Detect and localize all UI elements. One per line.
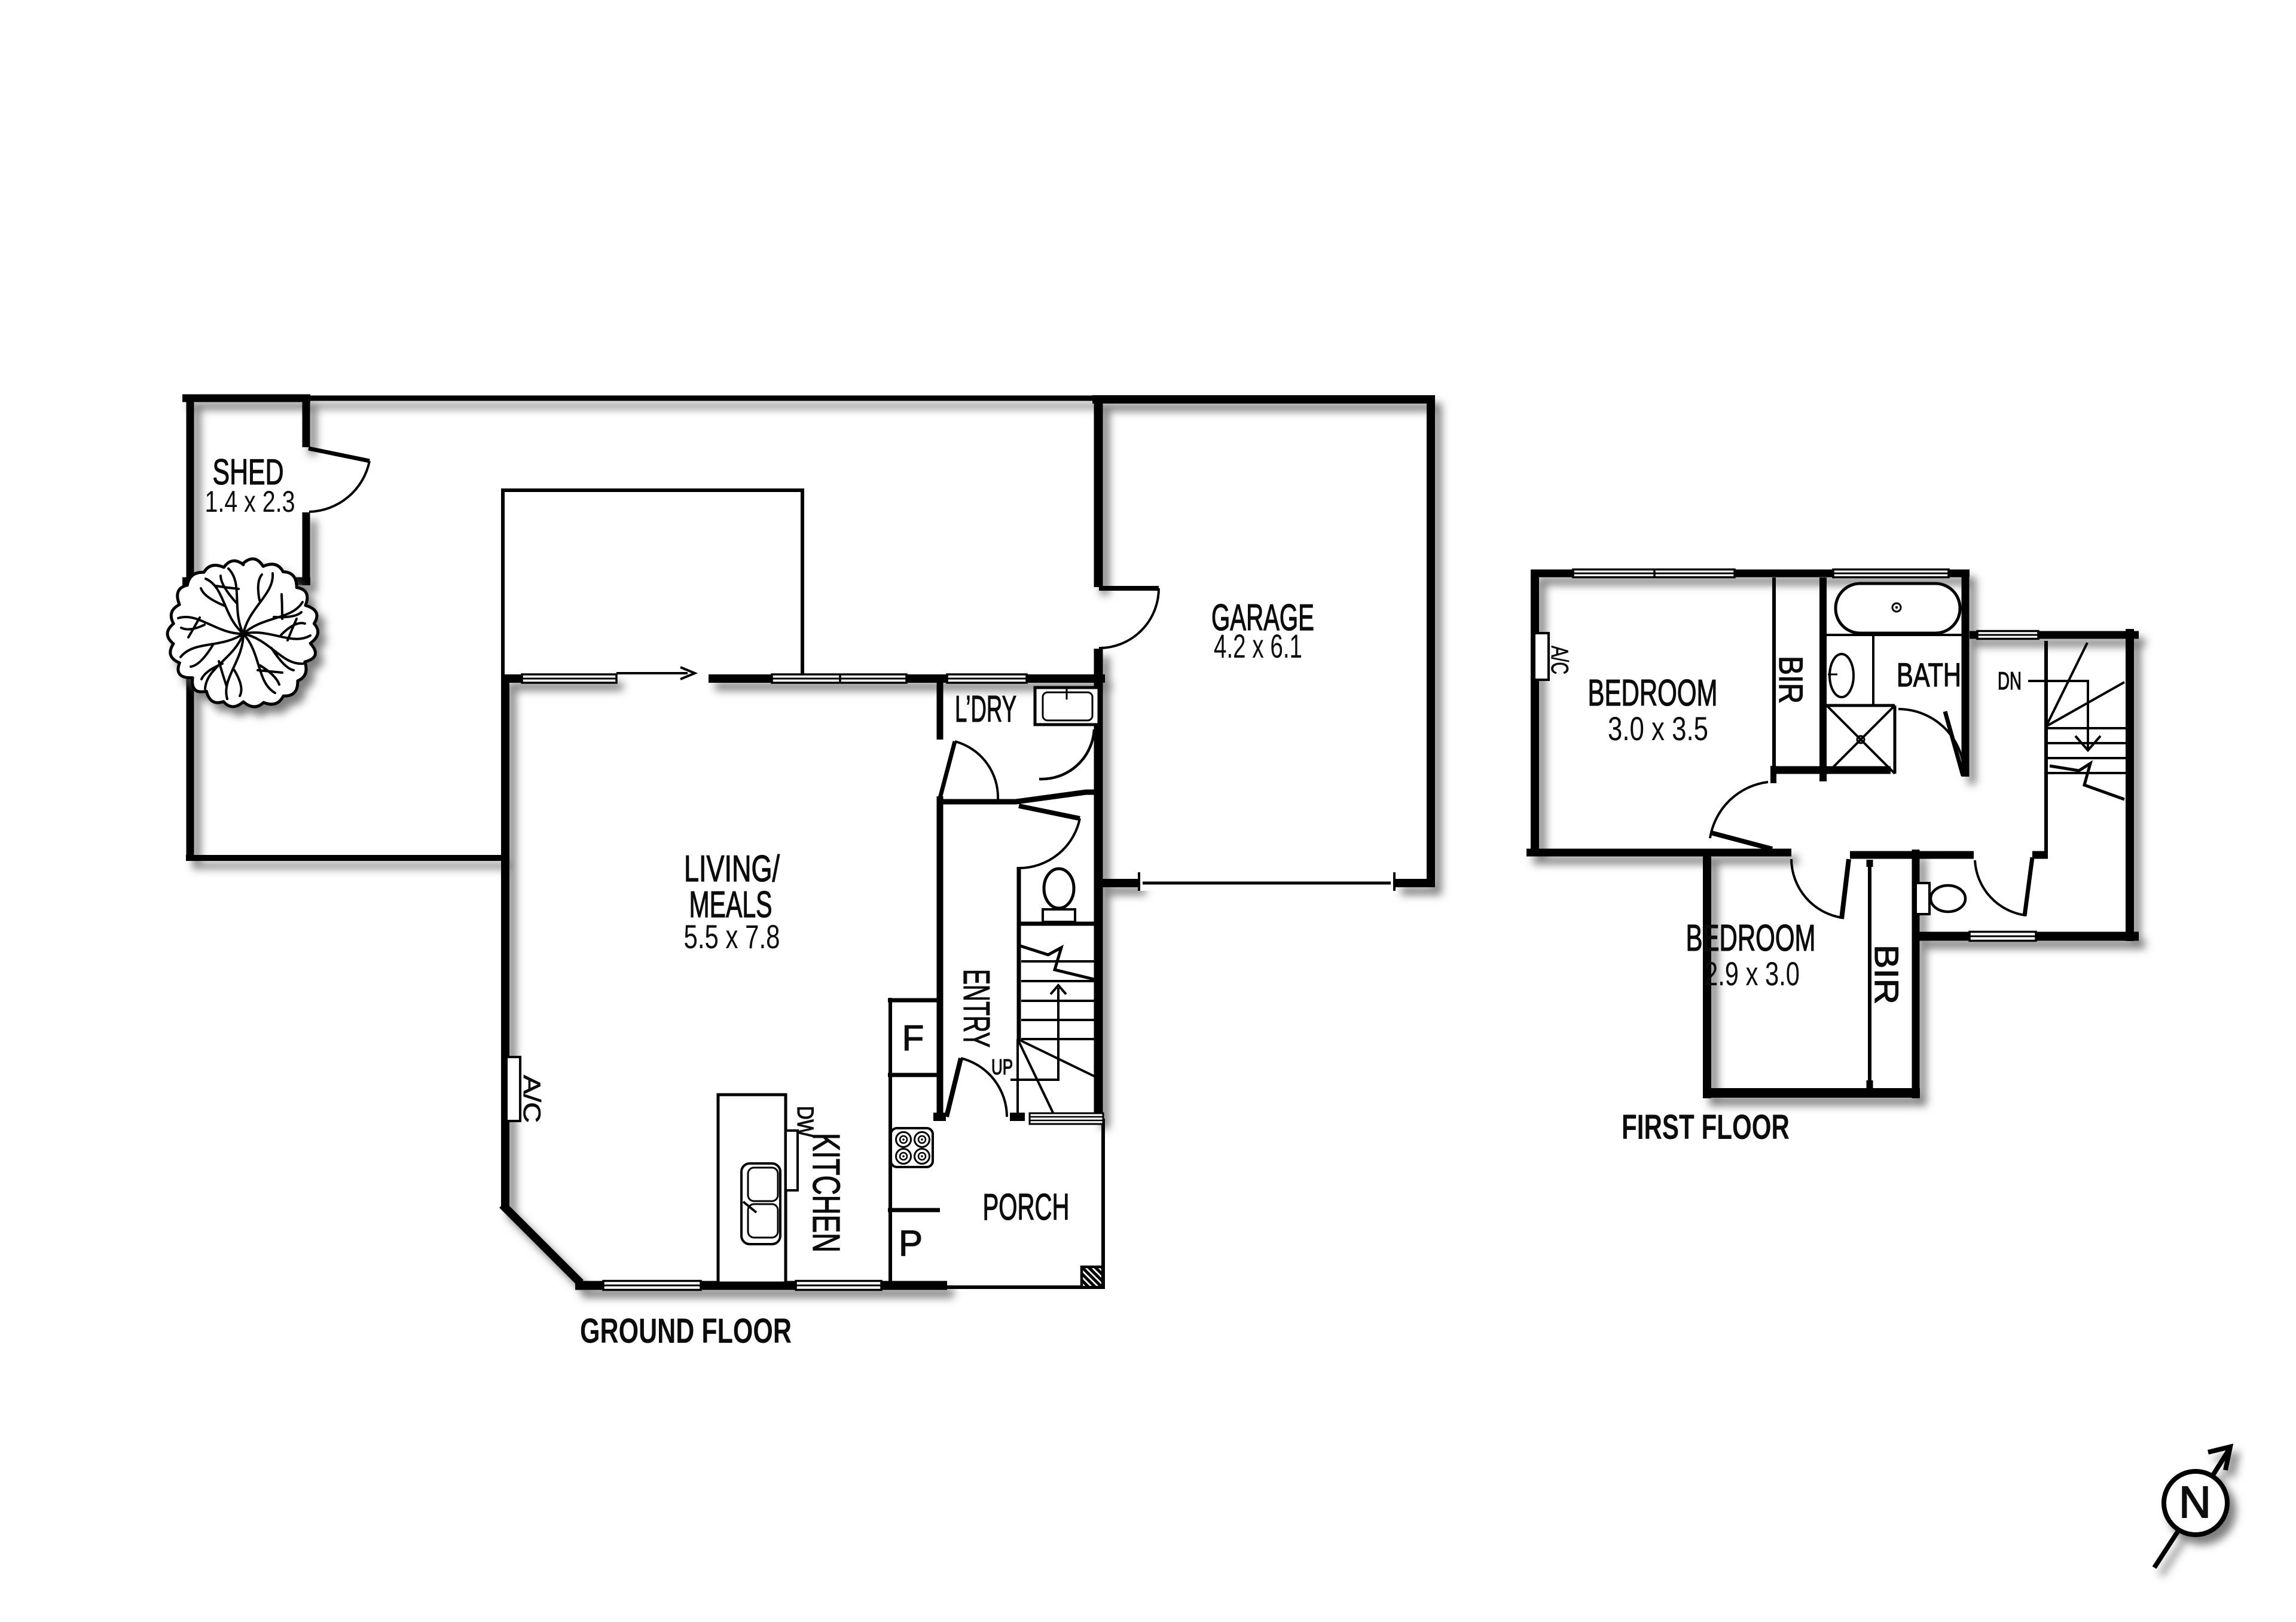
svg-text:FIRST FLOOR: FIRST FLOOR [1622, 1108, 1790, 1147]
svg-text:2.9 x 3.0: 2.9 x 3.0 [1704, 955, 1800, 992]
svg-text:BIR: BIR [1868, 945, 1906, 1004]
svg-text:DN: DN [1998, 667, 2022, 695]
svg-text:1.4 x 2.3: 1.4 x 2.3 [205, 485, 295, 518]
svg-text:BIR: BIR [1772, 656, 1810, 704]
svg-text:F: F [902, 1018, 924, 1058]
svg-text:PORCH: PORCH [983, 1187, 1070, 1228]
svg-text:A/C: A/C [518, 1075, 545, 1123]
svg-text:BEDROOM: BEDROOM [1686, 918, 1816, 959]
svg-text:3.0 x 3.5: 3.0 x 3.5 [1608, 710, 1708, 747]
svg-text:ENTRY: ENTRY [955, 969, 997, 1047]
svg-text:GROUND FLOOR: GROUND FLOOR [580, 1312, 792, 1351]
svg-text:KITCHEN: KITCHEN [805, 1133, 848, 1253]
svg-text:UP: UP [991, 1055, 1013, 1079]
svg-text:BATH: BATH [1897, 656, 1961, 694]
svg-text:BEDROOM: BEDROOM [1588, 673, 1718, 714]
svg-text:DW: DW [792, 1106, 817, 1137]
svg-text:LIVING/: LIVING/ [684, 848, 780, 890]
svg-text:A/C: A/C [1546, 646, 1573, 674]
svg-text:L’DRY: L’DRY [955, 689, 1016, 730]
svg-text:N: N [2179, 1477, 2210, 1527]
svg-text:4.2 x 6.1: 4.2 x 6.1 [1214, 627, 1302, 665]
svg-text:P: P [899, 1223, 923, 1263]
svg-text:5.5 x 7.8: 5.5 x 7.8 [684, 918, 780, 955]
